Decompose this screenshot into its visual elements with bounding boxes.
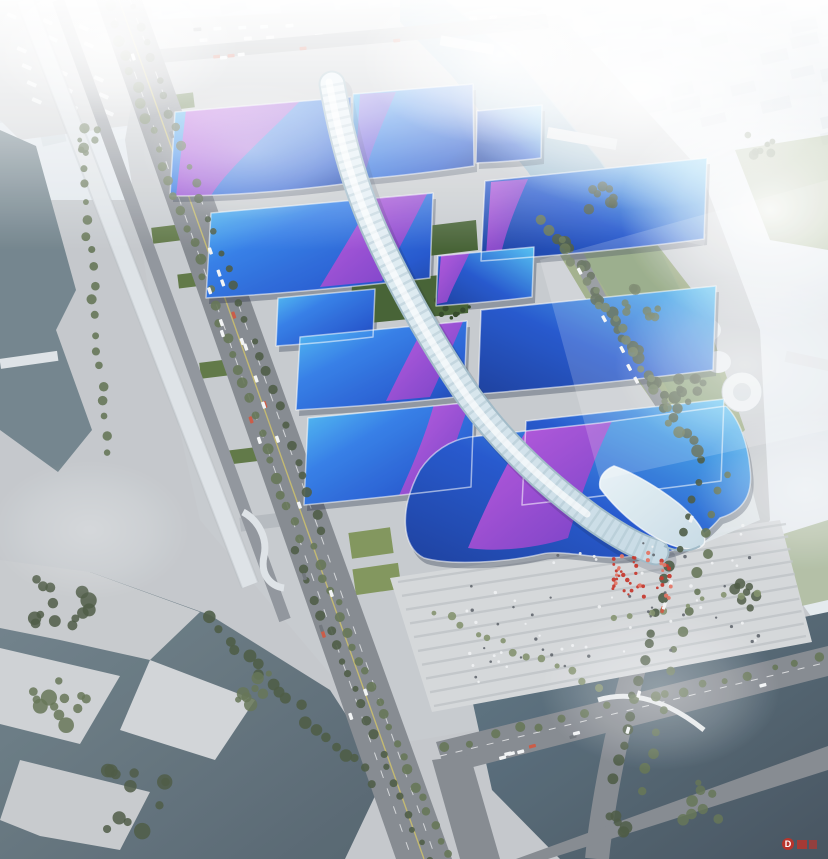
watermark-glyph	[809, 840, 817, 849]
scene-canvas: D	[0, 0, 828, 859]
aerial-rendering: D	[0, 0, 828, 859]
watermark-glyph	[797, 840, 807, 849]
watermark-letter: D	[785, 839, 792, 849]
exhibition-hall-roof	[476, 105, 542, 163]
